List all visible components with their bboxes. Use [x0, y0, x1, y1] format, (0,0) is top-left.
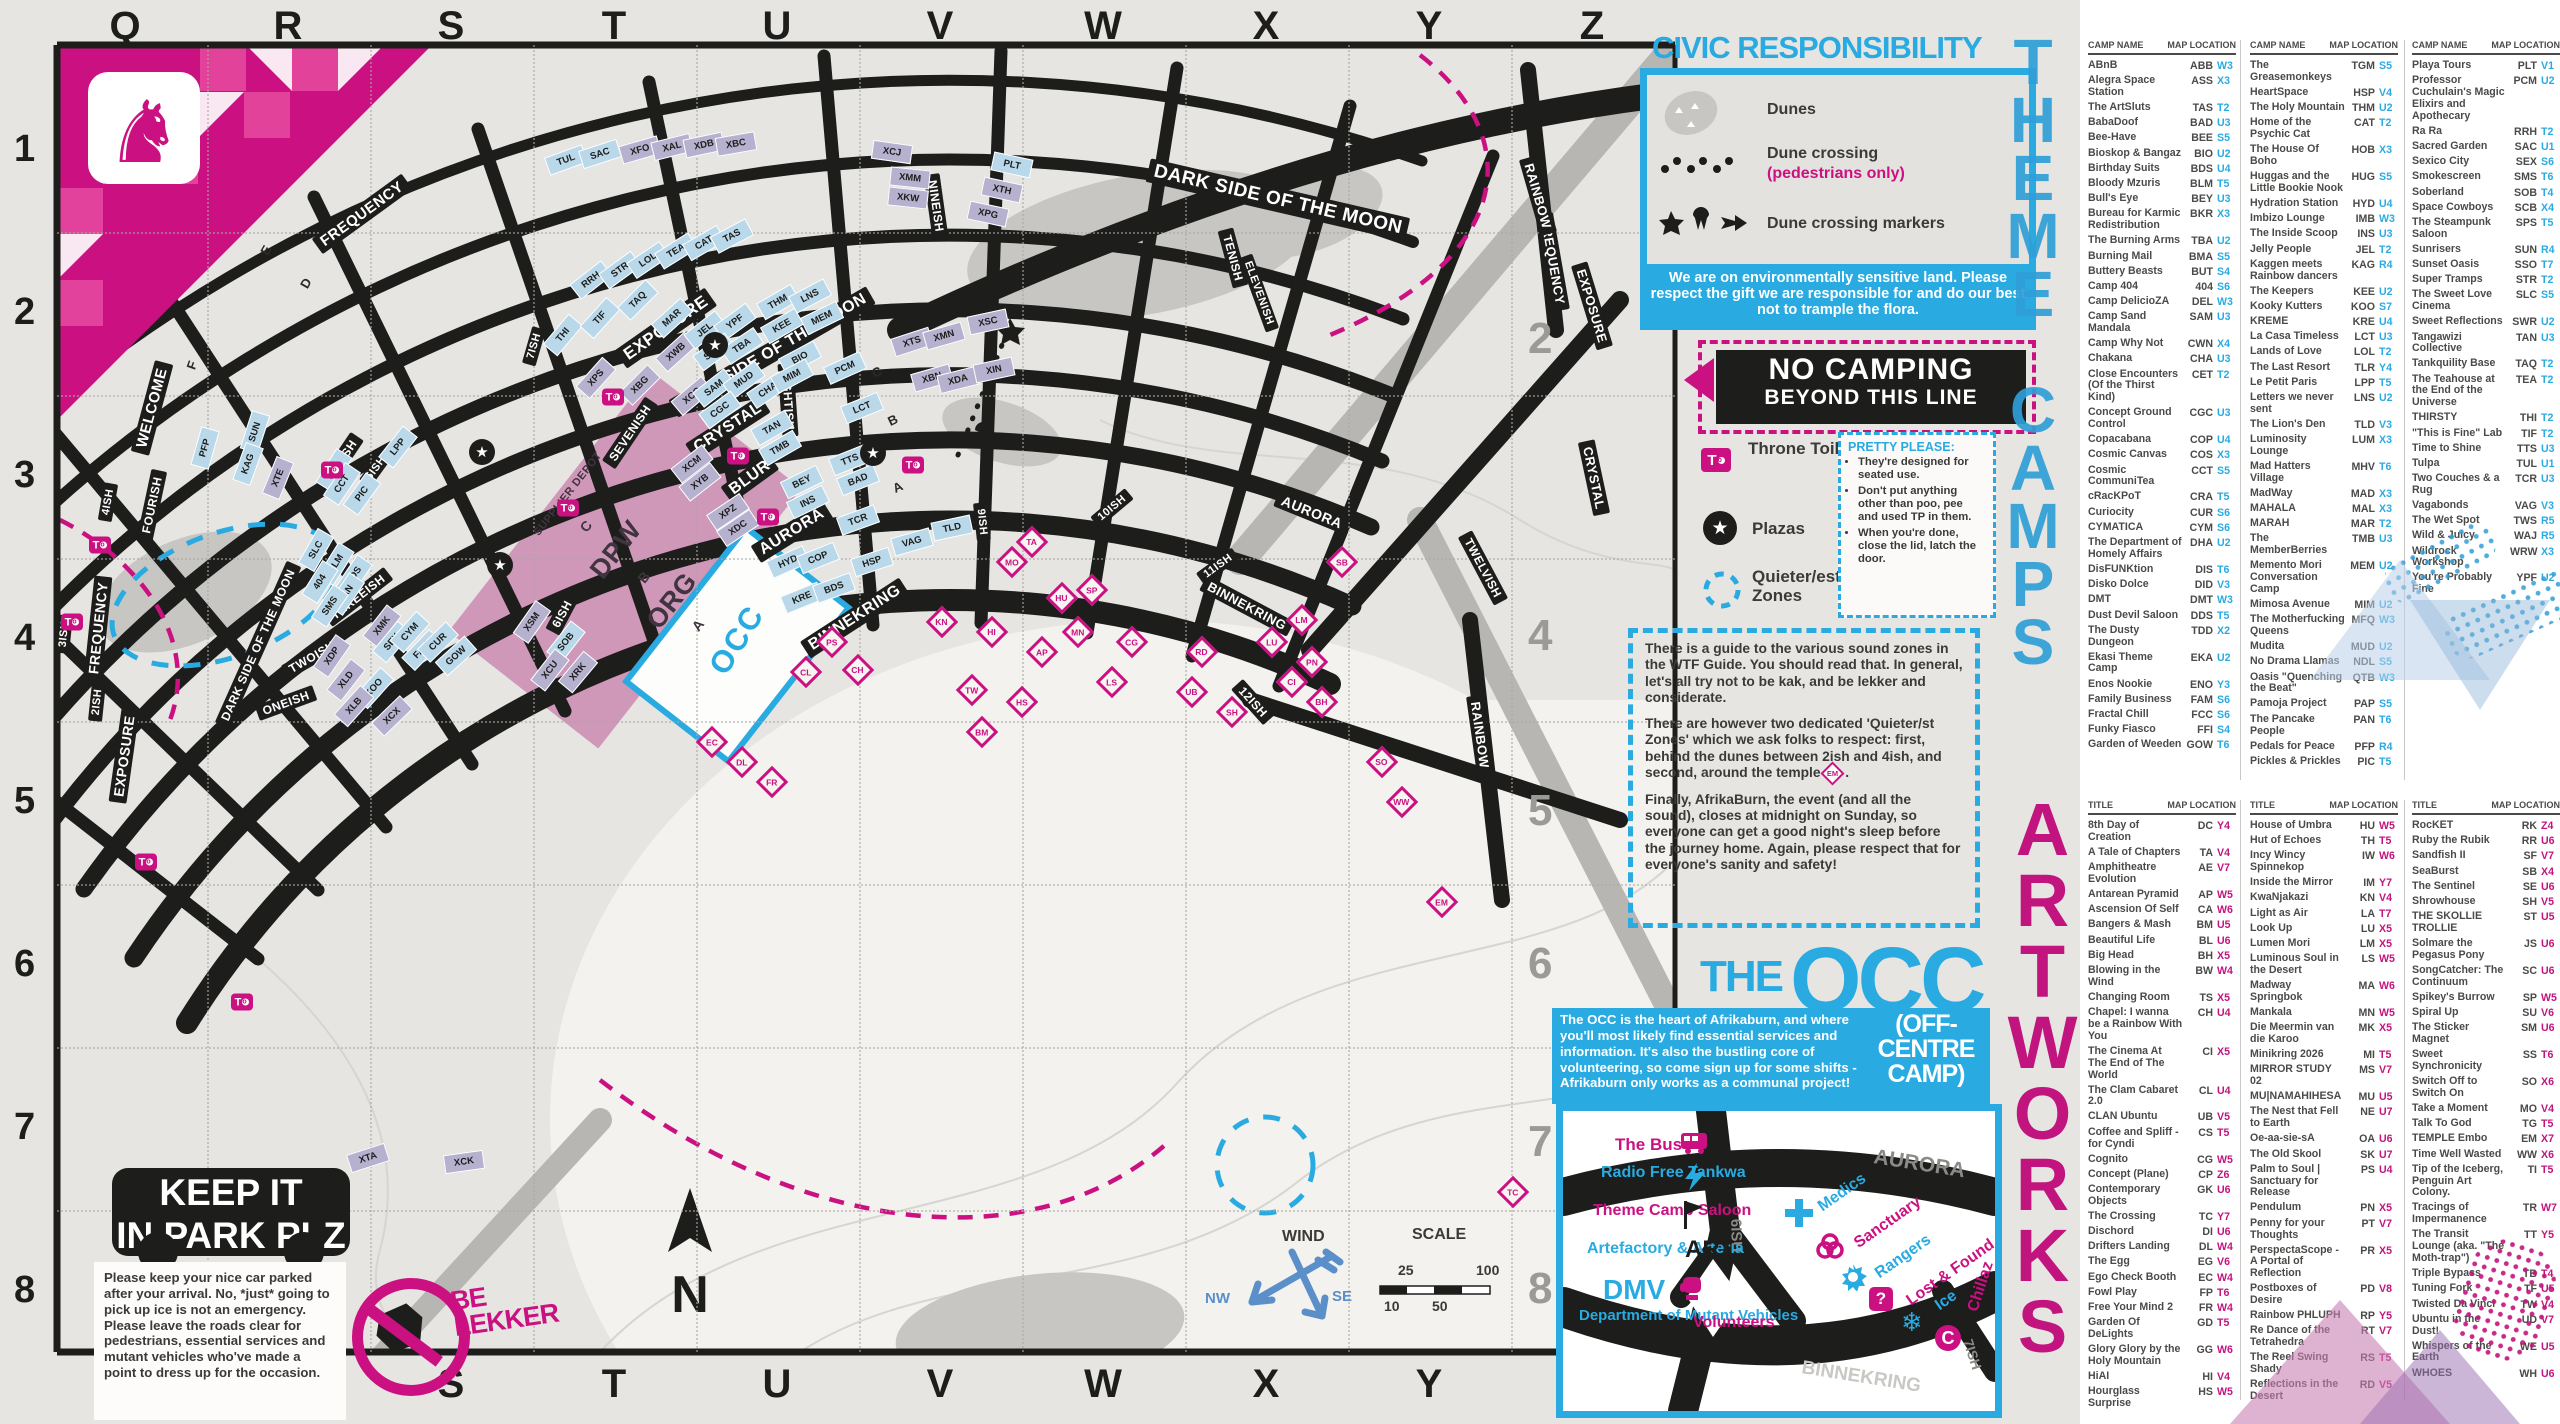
list-row: Camp Sand MandalaSAMU3: [2088, 311, 2236, 335]
keep-it-line1: KEEP IT: [112, 1174, 350, 1211]
list-row: Kooky KuttersKOOS7: [2250, 301, 2398, 313]
list-row: DisFUNKtionDIST6: [2088, 564, 2236, 576]
list-row: The Nest that Fell to EarthNEU7: [2250, 1106, 2398, 1130]
radio-free-tankwa-label: Radio Free Tankwa: [1601, 1165, 1679, 1180]
list-row: The Burning ArmsTBAU2: [2088, 235, 2236, 247]
list-row: CognitoCGW5: [2088, 1154, 2236, 1166]
list-row: Disko DolceDIDV3: [2088, 579, 2236, 591]
lightning-icon: [1683, 1163, 1707, 1191]
list-row: Changing RoomTSX5: [2088, 992, 2236, 1004]
scale-25: 25: [1398, 1262, 1414, 1278]
dmv-label: DMV: [1603, 1277, 1665, 1304]
list-row: HiAIHIV4: [2088, 1371, 2236, 1383]
list-row: The Holy MountainTHMU2: [2250, 102, 2398, 114]
list-row: Free Your Mind 2FRW4: [2088, 1302, 2236, 1314]
toilet-marker: To: [89, 537, 111, 554]
list-row: Camp 404404S6: [2088, 281, 2236, 293]
grid-number-right: 6: [1528, 939, 1552, 989]
list-row: cRacKPoTCRAT5: [2088, 491, 2236, 503]
occ-subtitle: (OFF-CENTRECAMP): [1866, 1012, 1986, 1087]
grid-number-right: 4: [1528, 611, 1552, 661]
list-row: Sweet ReflectionsSWRU2: [2412, 316, 2560, 328]
list-row: Sexico CitySEXS6: [2412, 156, 2560, 168]
list-row: PendulumPNX5: [2250, 1202, 2398, 1214]
artworks-column-1: TITLEMAP LOCATION8th Day of CreationDCY4…: [2088, 800, 2236, 1413]
keep-it-car-stamp: KEEP IT IN PARK PLZ: [112, 1168, 350, 1256]
list-row: CLAN UbuntuUBV5: [2088, 1111, 2236, 1123]
list-row: Imbizo LoungeIMBW3: [2250, 213, 2398, 225]
list-row: Minikring 2026MIT5: [2250, 1049, 2398, 1061]
list-row: Space CowboysSCBX4: [2412, 202, 2560, 214]
list-header: CAMP NAMEMAP LOCATION: [2250, 40, 2398, 55]
list-row: MAHALAMALX3: [2250, 503, 2398, 515]
list-row: The House Of BohoHOBX3: [2250, 144, 2398, 168]
grid-letter-top: X: [1253, 4, 1280, 49]
grid-number-right: 2: [1528, 314, 1552, 364]
list-row: Madway SpringbokMAW6: [2250, 980, 2398, 1004]
list-row: Chapel: I wanna be a Rainbow With YouCHU…: [2088, 1007, 2236, 1043]
list-row: Hut of EchoesTHT5: [2250, 835, 2398, 847]
list-row: Beautiful LifeBLU6: [2088, 935, 2236, 947]
chillaz-icon: C: [1935, 1325, 1961, 1351]
list-row: ABnBABBW3: [2088, 60, 2236, 72]
toilet-marker: To: [757, 509, 779, 526]
list-row: PerspectaScope - A Portal of ReflectionP…: [2250, 1245, 2398, 1281]
list-row: CuriocityCURS6: [2088, 507, 2236, 519]
grid-line: [57, 232, 1675, 234]
list-row: Big HeadBHX5: [2088, 950, 2236, 962]
keep-it-line2: IN PARK PLZ: [112, 1217, 350, 1254]
lists-panel: CAMP NAMEMAP LOCATIONABnBABBW3Alegra Spa…: [2080, 0, 2560, 1424]
list-row: Ego Check BoothECW4: [2088, 1272, 2236, 1284]
grid-number-right: 5: [1528, 786, 1552, 836]
list-row: The Inside ScoopINSU3: [2250, 228, 2398, 240]
theme-camp-saloon-label: Theme Camp Saloon: [1593, 1203, 1679, 1218]
list-row: Time to ShineTTSU3: [2412, 443, 2560, 455]
list-row: Mad Hatters VillageMHVT6: [2250, 461, 2398, 485]
list-row: Switch Off to Switch OnSOX6: [2412, 1076, 2560, 1100]
list-row: Family BusinessFAMS6: [2088, 694, 2236, 706]
list-row: MIRROR STUDY 02MSV7: [2250, 1064, 2398, 1088]
list-row: The Lion's DenTLDV3: [2250, 419, 2398, 431]
dune-crossing-icon: [1657, 153, 1743, 177]
list-row: The Steampunk SaloonSPST5: [2412, 217, 2560, 241]
wind-label: WIND: [1282, 1228, 1325, 1246]
list-row: SoberlandSOBT4: [2412, 187, 2560, 199]
list-row: Fowl PlayFPT6: [2088, 1287, 2236, 1299]
list-row: MU|NAMAHIHESAMUU5: [2250, 1091, 2398, 1103]
list-row: BabaDoofBADU3: [2088, 117, 2236, 129]
list-row: The Sticker MagnetSMU6: [2412, 1022, 2560, 1046]
list-row: The EggEGV6: [2088, 1256, 2236, 1268]
rangers-badge-icon: [1839, 1263, 1867, 1291]
list-row: Enos NookieENOY3: [2088, 679, 2236, 691]
list-row: Solmare the Pegasus PonyJSU6: [2412, 938, 2560, 962]
list-row: Super TrampsSTRT2: [2412, 274, 2560, 286]
pedestrians-only-label: (pedestrians only): [1767, 165, 1905, 183]
list-row: The MemberBerriesTMBU3: [2250, 533, 2398, 557]
list-row: DMTDMTW3: [2088, 594, 2236, 606]
list-row: Inside the MirrorIMY7: [2250, 877, 2398, 889]
list-row: Kaggen meets Rainbow dancersKAGR4: [2250, 259, 2398, 283]
list-row: Bureau for Karmic RedistributionBKRX3: [2088, 208, 2236, 232]
wind-nw-label: NW: [1205, 1290, 1230, 1307]
grid-line: [57, 1047, 1675, 1049]
list-row: RocKETRKZ4: [2412, 820, 2560, 832]
list-row: Lands of LoveLOLT2: [2250, 346, 2398, 358]
list-row: The ArtSlutsTAST2: [2088, 102, 2236, 114]
grid-line: [207, 45, 209, 1352]
grid-letter-top: Z: [1580, 4, 1604, 49]
list-row: Time Well WastedWWX6: [2412, 1149, 2560, 1161]
keep-it-text: Please keep your nice car parked after y…: [94, 1262, 346, 1420]
grid-line: [57, 721, 1675, 723]
list-row: Talk To GodTGT5: [2412, 1118, 2560, 1130]
list-row: Blowing in the WindBWW4: [2088, 965, 2236, 989]
list-row: Bull's EyeBEYU3: [2088, 193, 2236, 205]
grid-line: [1511, 45, 1513, 1352]
list-row: Bioskop & BangazBIOU2: [2088, 148, 2236, 160]
grid-line: [57, 884, 1675, 886]
list-row: Camp DelicioZADELW3: [2088, 296, 2236, 308]
svg-text:♞: ♞: [105, 83, 182, 183]
grid-letter-bottom: U: [763, 1362, 792, 1407]
list-row: The Teahouse at the End of the UniverseT…: [2412, 374, 2560, 410]
list-row: Home of the Psychic CatCATT2: [2250, 117, 2398, 141]
list-row: Spikey's BurrowSPW5: [2412, 992, 2560, 1004]
list-row: Sandfish IISFV7: [2412, 850, 2560, 862]
list-row: Cosmic CommuniTeaCCTS5: [2088, 465, 2236, 489]
list-row: Garden of WeedenGOWT6: [2088, 739, 2236, 751]
plaza-marker: ★: [702, 332, 728, 358]
list-row: Jelly PeopleJELT2: [2250, 244, 2398, 256]
toilet-marker: To: [61, 614, 83, 631]
scale-100: 100: [1476, 1262, 1499, 1278]
occ-title-the: THE: [1700, 952, 1782, 1002]
list-row: Take a MomentMOV4: [2412, 1103, 2560, 1115]
list-row: Ekasi Theme CampEKAU2: [2088, 652, 2236, 676]
artworks-heading: ARTWORKS: [2000, 788, 2085, 1356]
list-row: Light as AirLAT7: [2250, 908, 2398, 920]
list-row: KREMEKREU4: [2250, 316, 2398, 328]
civic-legend-box: Dunes Dune crossing (pedestrians only) D…: [1640, 68, 2036, 278]
grid-letter-top: U: [763, 4, 792, 49]
list-row: SeaBurstSBX4: [2412, 866, 2560, 878]
list-row: SmokescreenSMST6: [2412, 171, 2560, 183]
list-row: The Last ResortTLRY4: [2250, 362, 2398, 374]
list-row: Die Meermin van die KarooMKX5: [2250, 1022, 2398, 1046]
list-row: Lumen MoriLMX5: [2250, 938, 2398, 950]
volunteers-label: Volunteers: [1693, 1315, 1775, 1330]
list-row: Antarean PyramidAPW5: [2088, 889, 2236, 901]
list-row: Close Encounters (Of the Thirst Kind)CET…: [2088, 369, 2236, 405]
list-row: Pedals for PeacePFPR4: [2250, 741, 2398, 753]
list-row: Sacred GardenSACU1: [2412, 141, 2560, 153]
list-row: The Department of Homely AffairsDHAU2: [2088, 537, 2236, 561]
list-row: Fractal ChillFCCS6: [2088, 709, 2236, 721]
list-row: Alegra Space StationASSX3: [2088, 75, 2236, 99]
wind-se-label: SE: [1332, 1288, 1352, 1305]
list-header: TITLEMAP LOCATION: [2250, 800, 2398, 815]
grid-letter-top: Q: [109, 4, 140, 49]
list-row: SunrisersSUNR4: [2412, 244, 2560, 256]
sound-zones-box: There is a guide to the various sound zo…: [1628, 628, 1980, 928]
theme-camps-heading: THEME CAMPS: [1996, 26, 2070, 664]
no-camping-arrow-icon: [1684, 358, 1714, 402]
list-header: TITLEMAP LOCATION: [2088, 800, 2236, 815]
no-camping-box: NO CAMPING BEYOND THIS LINE: [1698, 340, 2036, 434]
inset-binnekring-label: BINNEKRING: [1800, 1357, 1922, 1397]
svg-text:N: N: [671, 1266, 709, 1324]
list-row: VagabondsVAGV3: [2412, 500, 2560, 512]
ice-icon: ❄: [1901, 1307, 1923, 1338]
dune-crossing-markers-label: Dune crossing markers: [1767, 215, 1945, 233]
list-row: TEMPLE EmboEMX7: [2412, 1133, 2560, 1145]
grid-letter-top: V: [927, 4, 954, 49]
list-row: Luminosity LoungeLUMX3: [2250, 434, 2398, 458]
grid-number-right: 8: [1528, 1264, 1552, 1314]
grid-number-left: 5: [14, 780, 35, 823]
toilet-marker: To: [231, 994, 253, 1011]
list-row: Bloody MzurisBLMT5: [2088, 178, 2236, 190]
list-row: Ascension Of SelfCAW6: [2088, 904, 2236, 916]
pretty-please-bullet: Don't put anything other than poo, pee a…: [1858, 485, 1986, 525]
list-row: The Sweet Love CinemaSLCS5: [2412, 289, 2560, 313]
list-row: Oe-aa-sie-sAOAU6: [2250, 1133, 2398, 1145]
list-row: Drifters LandingDLW4: [2088, 1241, 2236, 1253]
list-row: The Dusty DungeonTDDX2: [2088, 625, 2236, 649]
list-row: Le Petit ParisLPPT5: [2250, 377, 2398, 389]
grid-number-right: 7: [1528, 1117, 1552, 1167]
list-header: CAMP NAMEMAP LOCATION: [2412, 40, 2560, 55]
list-row: The Cinema At The End of The WorldCIX5: [2088, 1046, 2236, 1082]
environment-banner: We are on environmentally sensitive land…: [1640, 264, 2036, 330]
list-row: A Tale of ChaptersTAV4: [2088, 847, 2236, 859]
list-row: THIRSTYTHIT2: [2412, 412, 2560, 424]
list-row: Luminous Soul in the DesertLSW5: [2250, 953, 2398, 977]
list-row: Bee-HaveBEES5: [2088, 132, 2236, 144]
list-row: Coffee and Spliff - for CyndiCST5: [2088, 1127, 2236, 1151]
list-row: Burning MailBMAS5: [2088, 251, 2236, 263]
list-row: ShrowhouseSHV5: [2412, 896, 2560, 908]
list-row: Hourglass SurpriseHSW5: [2088, 1386, 2236, 1410]
list-row: Look UpLUX5: [2250, 923, 2398, 935]
grid-letter-bottom: W: [1084, 1362, 1122, 1407]
flag-icon: [1683, 1199, 1705, 1229]
list-row: Tankquility BaseTAQT2: [2412, 358, 2560, 370]
list-row: Camp Why NotCWNX4: [2088, 338, 2236, 350]
list-row: The KeepersKEEU2: [2250, 286, 2398, 298]
list-row: CYMATICACYMS6: [2088, 522, 2236, 534]
list-row: ChakanaCHAU3: [2088, 353, 2236, 365]
list-row: Concept (Plane)CPZ6: [2088, 1169, 2236, 1181]
scale-label: SCALE: [1412, 1226, 1466, 1244]
toilet-marker: To: [727, 448, 749, 465]
plazas-label: Plazas: [1752, 520, 1805, 539]
sanctuary-icon: [1815, 1231, 1845, 1261]
quiet-zone-icon: [1700, 568, 1744, 612]
plaza-marker: ★: [487, 552, 513, 578]
grid-line: [1348, 45, 1350, 1352]
toilet-marker: To: [902, 457, 924, 474]
list-row: MARAHMART2: [2250, 518, 2398, 530]
afrikaburn-map-poster: ♞ N: [0, 0, 2560, 1424]
camp-block: XKW: [887, 186, 929, 209]
list-row: MankalaMNW5: [2250, 1007, 2398, 1019]
dunes-icon: [1661, 83, 1721, 143]
grid-number-left: 3: [14, 454, 35, 497]
grid-number-left: 6: [14, 943, 35, 986]
medics-cross-icon: [1785, 1199, 1813, 1227]
list-row: Contemporary ObjectsGKU6: [2088, 1184, 2236, 1208]
list-row: Sunset OasisSSOT7: [2412, 259, 2560, 271]
grid-letter-top: R: [274, 4, 303, 49]
list-row: Garden Of DeLightsGDT5: [2088, 1317, 2236, 1341]
list-row: Cosmic CanvasCOSX3: [2088, 449, 2236, 461]
pretty-please-bullet: They're designed for seated use.: [1858, 456, 1986, 483]
list-row: Incy Wincy SpinnekopIWW6: [2250, 850, 2398, 874]
fist-icon: [1679, 1273, 1705, 1303]
toilet-marker: To: [557, 500, 579, 517]
list-row: SongCatcher: The ContinuumSCU6: [2412, 965, 2560, 989]
grid-line: [533, 45, 535, 1352]
camp-block: XMM: [889, 166, 931, 189]
list-row: THE SKOLLIE TROLLIESTU5: [2412, 911, 2560, 935]
list-row: Pamoja ProjectPAPS5: [2250, 698, 2398, 710]
toilet-marker: To: [602, 389, 624, 406]
list-row: Buttery BeastsBUTS4: [2088, 266, 2236, 278]
list-row: Glory Glory by the Holy MountainGGW6: [2088, 1344, 2236, 1368]
list-row: "This is Fine" LabTIFT2: [2412, 428, 2560, 440]
list-row: Hydration StationHYDU4: [2250, 198, 2398, 210]
scale-10: 10: [1384, 1298, 1400, 1314]
theme-camps-column-1: CAMP NAMEMAP LOCATIONABnBABBW3Alegra Spa…: [2088, 40, 2236, 754]
list-row: The CrossingTCY7: [2088, 1211, 2236, 1223]
list-row: Playa ToursPLTV1: [2412, 60, 2560, 72]
list-row: DischordDIU6: [2088, 1226, 2236, 1238]
list-row: House of UmbraHUW5: [2250, 820, 2398, 832]
list-row: Professor Cuchulain's Magic Elixirs and …: [2412, 75, 2560, 122]
list-row: HeartSpaceHSPV4: [2250, 87, 2398, 99]
list-row: Pickles & PricklesPICT5: [2250, 756, 2398, 768]
grid-letter-top: T: [602, 4, 626, 49]
list-row: The SentinelSEU6: [2412, 881, 2560, 893]
grid-number-left: 1: [14, 128, 35, 171]
occ-description: The OCC is the heart of Afrikaburn, and …: [1560, 1012, 1860, 1091]
grid-letter-bottom: V: [927, 1362, 954, 1407]
throne-toilets-icon: To: [1701, 448, 1731, 472]
grid-letter-bottom: Y: [1416, 1362, 1443, 1407]
list-row: TulpaTULU1: [2412, 458, 2560, 470]
list-row: CopacabanaCOPU4: [2088, 434, 2236, 446]
grid-number-left: 7: [14, 1106, 35, 1149]
dune-crossing-label: Dune crossing: [1767, 145, 1878, 163]
list-row: The Pancake PeoplePANT6: [2250, 714, 2398, 738]
toilet-marker: To: [135, 854, 157, 871]
list-row: The Old SkoolSKU7: [2250, 1149, 2398, 1161]
list-row: Penny for your ThoughtsPTV7: [2250, 1218, 2398, 1242]
scale-bar: [1380, 1286, 1490, 1294]
list-row: Huggas and the Little Bookie NookHUGS5: [2250, 171, 2398, 195]
scale-50: 50: [1432, 1298, 1448, 1314]
grid-number-left: 8: [14, 1269, 35, 1312]
list-row: Two Couches & a RugTCRU3: [2412, 473, 2560, 497]
the-bus-label: The Bus: [1615, 1137, 1682, 1153]
list-header: TITLEMAP LOCATION: [2412, 800, 2560, 815]
bus-icon: [1679, 1131, 1709, 1155]
grid-letter-top: S: [438, 4, 465, 49]
list-row: Amphitheatre EvolutionAEV7: [2088, 862, 2236, 886]
grid-letter-top: Y: [1416, 4, 1443, 49]
dmv-full-label: Department of Mutant Vehicles: [1579, 1309, 1689, 1323]
list-row: Ruby the RubikRRU6: [2412, 835, 2560, 847]
occ-inset-map: AURORA 6ISH BINNEKRING 7ISH The Bus Radi…: [1556, 1104, 2002, 1418]
list-row: MadWayMADX3: [2250, 488, 2398, 500]
lost-and-found-icon: ?: [1869, 1287, 1893, 1311]
theme-camps-column-3: CAMP NAMEMAP LOCATIONPlaya ToursPLTV1Pro…: [2412, 40, 2560, 599]
dunes-label: Dunes: [1767, 101, 1816, 119]
list-row: The GreasemonkeysTGMS5: [2250, 60, 2398, 84]
pretty-please-bullet: When you're done, close the lid, latch t…: [1858, 527, 1986, 567]
plazas-icon: ★: [1703, 511, 1737, 545]
dune-crossing-markers-icon: [1655, 207, 1755, 241]
list-header: CAMP NAMEMAP LOCATION: [2088, 40, 2236, 55]
list-row: Palm to Soul | Sanctuary for ReleasePSU4: [2250, 1164, 2398, 1200]
list-row: Concept Ground ControlCGCU3: [2088, 407, 2236, 431]
list-row: 8th Day of CreationDCY4: [2088, 820, 2236, 844]
grid-letter-top: W: [1084, 4, 1122, 49]
list-row: Tip of the Iceberg, Penguin Art Colony.T…: [2412, 1164, 2560, 1200]
list-row: Birthday SuitsBDSU4: [2088, 163, 2236, 175]
list-row: KwaNjakaziKNV4: [2250, 892, 2398, 904]
list-row: The Wet SpotTWSR5: [2412, 515, 2560, 527]
grid-line: [859, 45, 861, 1352]
list-row: Spiral UpSUV6: [2412, 1007, 2560, 1019]
list-row: Sweet SynchronicitySST6: [2412, 1049, 2560, 1073]
art-label: ART: [1685, 1239, 1734, 1262]
grid-letter-bottom: X: [1253, 1362, 1280, 1407]
civic-responsibility-title: CIVIC RESPONSIBILITY: [1652, 30, 2032, 66]
list-row: Tangawizi CollectiveTANU3: [2412, 332, 2560, 356]
list-row: Bangers & MashBMU5: [2088, 919, 2236, 931]
plaza-marker: ★: [860, 440, 886, 466]
list-row: La Casa TimelessLCTU3: [2250, 331, 2398, 343]
list-row: Letters we never sentLNSU2: [2250, 392, 2398, 416]
plaza-marker: ★: [469, 439, 495, 465]
toilet-marker: To: [321, 462, 343, 479]
pretty-please-box: PRETTY PLEASE: They're designed for seat…: [1838, 432, 1996, 618]
list-row: Tracings of ImpermanenceTRW7: [2412, 1202, 2560, 1226]
grid-letter-bottom: T: [602, 1362, 626, 1407]
list-row: Dust Devil SaloonDDST5: [2088, 610, 2236, 622]
artefactory-label: Artefactory & Arteria: [1587, 1241, 1679, 1256]
list-row: The Clam Cabaret 2.0CLU4: [2088, 1085, 2236, 1109]
list-row: Funky FiascoFFIS4: [2088, 724, 2236, 736]
grid-number-left: 2: [14, 291, 35, 334]
grid-number-left: 4: [14, 617, 35, 660]
list-row: Ra RaRRHT2: [2412, 126, 2560, 138]
